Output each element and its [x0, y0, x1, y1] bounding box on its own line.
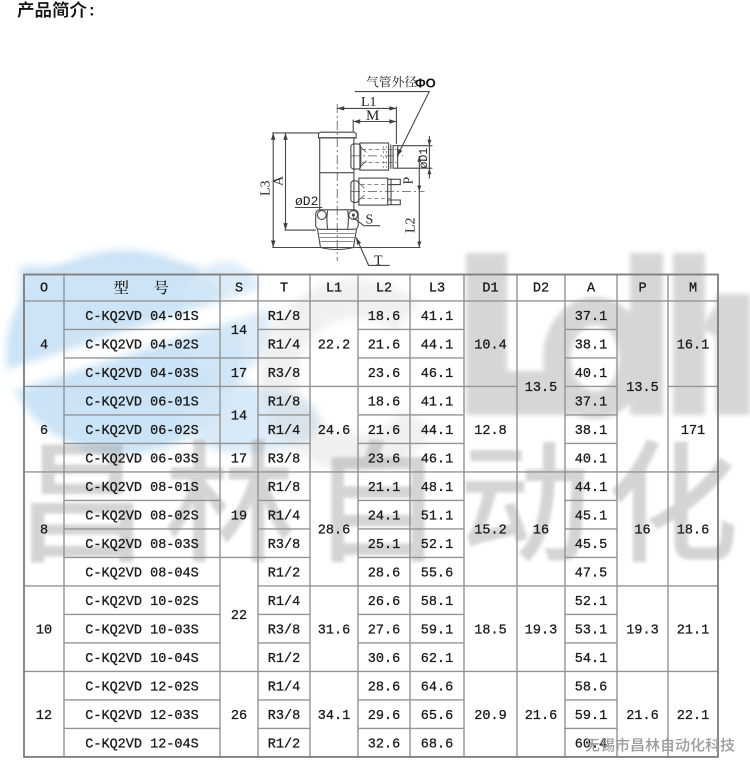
svg-text:44.1: 44.1 [575, 481, 607, 496]
svg-text:38.1: 38.1 [575, 338, 607, 353]
svg-text:32.6: 32.6 [368, 737, 400, 752]
svg-text:T: T [280, 282, 288, 297]
svg-text:øD2: øD2 [295, 194, 318, 209]
svg-text:C-KQ2VD 04-02S: C-KQ2VD 04-02S [85, 338, 198, 353]
svg-text:28.6: 28.6 [368, 566, 400, 581]
svg-text:8: 8 [40, 524, 48, 539]
svg-text:40.1: 40.1 [575, 367, 607, 382]
svg-text:29.6: 29.6 [368, 709, 400, 724]
svg-text:T: T [374, 254, 383, 269]
svg-text:40.1: 40.1 [575, 452, 607, 467]
svg-text:12: 12 [36, 709, 52, 724]
svg-text:21.1: 21.1 [368, 481, 400, 496]
svg-text:18.6: 18.6 [677, 524, 709, 539]
svg-text:C-KQ2VD 10-02S: C-KQ2VD 10-02S [85, 595, 198, 610]
svg-text:10.4: 10.4 [474, 338, 506, 353]
svg-text:38.1: 38.1 [575, 424, 607, 439]
svg-text:48.1: 48.1 [421, 481, 453, 496]
svg-text:64.6: 64.6 [421, 680, 453, 695]
svg-text:12.8: 12.8 [474, 424, 506, 439]
svg-text:22.1: 22.1 [677, 709, 709, 724]
svg-text:ΦO: ΦO [415, 76, 436, 91]
svg-text:14: 14 [231, 410, 247, 425]
svg-text:65.6: 65.6 [421, 709, 453, 724]
svg-text:17: 17 [231, 452, 247, 467]
svg-text:P: P [402, 177, 417, 185]
svg-text:C-KQ2VD 08-02S: C-KQ2VD 08-02S [85, 509, 198, 524]
svg-text:22: 22 [231, 609, 247, 624]
svg-text:51.1: 51.1 [421, 509, 453, 524]
svg-text:C-KQ2VD 12-02S: C-KQ2VD 12-02S [85, 680, 198, 695]
svg-text:46.1: 46.1 [421, 452, 453, 467]
svg-text:R1/4: R1/4 [268, 680, 300, 695]
svg-text:R1/4: R1/4 [268, 509, 300, 524]
svg-text:R1/2: R1/2 [268, 737, 300, 752]
svg-text:L1: L1 [326, 282, 342, 297]
svg-text:C-KQ2VD 06-02S: C-KQ2VD 06-02S [85, 424, 198, 439]
svg-text:68.6: 68.6 [421, 737, 453, 752]
svg-text:58.1: 58.1 [421, 595, 453, 610]
svg-text:54.1: 54.1 [575, 652, 607, 667]
svg-text:6: 6 [40, 424, 48, 439]
svg-text:D2: D2 [533, 282, 549, 297]
svg-text:R3/8: R3/8 [268, 623, 300, 638]
svg-text:C-KQ2VD 12-04S: C-KQ2VD 12-04S [85, 737, 198, 752]
svg-text:L3: L3 [429, 282, 445, 297]
svg-text:O: O [40, 282, 48, 297]
svg-text:47.5: 47.5 [575, 566, 607, 581]
svg-text:D1: D1 [482, 282, 498, 297]
svg-text:10: 10 [36, 623, 52, 638]
svg-text:R1/2: R1/2 [268, 652, 300, 667]
svg-text:34.1: 34.1 [318, 709, 350, 724]
svg-text:37.1: 37.1 [575, 395, 607, 410]
svg-text:R3/8: R3/8 [268, 452, 300, 467]
svg-text:41.1: 41.1 [421, 310, 453, 325]
svg-text:R3/8: R3/8 [268, 367, 300, 382]
svg-text:24.6: 24.6 [318, 424, 350, 439]
svg-text:C-KQ2VD 06-01S: C-KQ2VD 06-01S [85, 395, 198, 410]
svg-text:41.1: 41.1 [421, 395, 453, 410]
svg-text:L2: L2 [376, 282, 392, 297]
svg-text:17: 17 [231, 367, 247, 382]
svg-text:18.6: 18.6 [368, 310, 400, 325]
svg-text:28.6: 28.6 [368, 680, 400, 695]
svg-text:16.1: 16.1 [677, 338, 709, 353]
svg-text:19: 19 [231, 509, 247, 524]
svg-text:M: M [689, 282, 697, 297]
svg-text:21.6: 21.6 [368, 338, 400, 353]
svg-text:C-KQ2VD 08-01S: C-KQ2VD 08-01S [85, 481, 198, 496]
svg-text:19.3: 19.3 [626, 623, 658, 638]
svg-text:R1/8: R1/8 [268, 395, 300, 410]
svg-text:C-KQ2VD 08-03S: C-KQ2VD 08-03S [85, 538, 198, 553]
svg-text:31.6: 31.6 [318, 623, 350, 638]
svg-text:55.6: 55.6 [421, 566, 453, 581]
svg-text:59.1: 59.1 [575, 709, 607, 724]
svg-text:18.5: 18.5 [474, 623, 506, 638]
svg-text:C-KQ2VD 10-03S: C-KQ2VD 10-03S [85, 623, 198, 638]
svg-text:24.1: 24.1 [368, 509, 400, 524]
svg-text:S: S [235, 282, 243, 297]
svg-text:45.1: 45.1 [575, 509, 607, 524]
svg-text:R1/4: R1/4 [268, 595, 300, 610]
svg-text:15.2: 15.2 [474, 524, 506, 539]
svg-text:21.6: 21.6 [626, 709, 658, 724]
svg-text:21.6: 21.6 [525, 709, 557, 724]
svg-text:20.9: 20.9 [474, 709, 506, 724]
svg-text:16: 16 [634, 524, 650, 539]
svg-text:59.1: 59.1 [421, 623, 453, 638]
svg-text:P: P [638, 282, 646, 297]
svg-text:C-KQ2VD 04-03S: C-KQ2VD 04-03S [85, 367, 198, 382]
svg-text:C-KQ2VD 04-01S: C-KQ2VD 04-01S [85, 310, 198, 325]
svg-text:37.1: 37.1 [575, 310, 607, 325]
svg-text:16: 16 [533, 524, 549, 539]
svg-text:44.1: 44.1 [421, 424, 453, 439]
svg-text:62.1: 62.1 [421, 652, 453, 667]
svg-text:R1/4: R1/4 [268, 424, 300, 439]
svg-text:44.1: 44.1 [421, 338, 453, 353]
svg-text:26.6: 26.6 [368, 595, 400, 610]
svg-text:C-KQ2VD 06-03S: C-KQ2VD 06-03S [85, 452, 198, 467]
svg-text:4: 4 [40, 338, 48, 353]
svg-text:58.6: 58.6 [575, 680, 607, 695]
svg-text:21.6: 21.6 [368, 424, 400, 439]
svg-text:46.1: 46.1 [421, 367, 453, 382]
svg-text:19.3: 19.3 [525, 623, 557, 638]
svg-text:13.5: 13.5 [525, 381, 557, 396]
svg-text:21.1: 21.1 [677, 623, 709, 638]
svg-text:53.1: 53.1 [575, 623, 607, 638]
svg-text:22.2: 22.2 [318, 338, 350, 353]
svg-text::: : [87, 3, 97, 21]
svg-text:45.5: 45.5 [575, 538, 607, 553]
svg-text:R3/8: R3/8 [268, 538, 300, 553]
svg-text:52.1: 52.1 [421, 538, 453, 553]
svg-text:A: A [272, 175, 287, 186]
svg-text:A: A [587, 282, 596, 297]
svg-text:23.6: 23.6 [368, 452, 400, 467]
svg-text:L2: L2 [404, 217, 419, 233]
svg-text:23.6: 23.6 [368, 367, 400, 382]
svg-text:M: M [366, 108, 379, 124]
svg-text:171: 171 [681, 424, 705, 439]
svg-text:52.1: 52.1 [575, 595, 607, 610]
svg-text:C-KQ2VD 10-04S: C-KQ2VD 10-04S [85, 652, 198, 667]
svg-text:R1/8: R1/8 [268, 310, 300, 325]
svg-text:18.6: 18.6 [368, 395, 400, 410]
svg-text:R1/4: R1/4 [268, 338, 300, 353]
svg-text:R1/2: R1/2 [268, 566, 300, 581]
svg-text:13.5: 13.5 [626, 381, 658, 396]
svg-text:26: 26 [231, 709, 247, 724]
svg-text:30.6: 30.6 [368, 652, 400, 667]
svg-text:25.1: 25.1 [368, 538, 400, 553]
svg-text:R3/8: R3/8 [268, 709, 300, 724]
svg-text:28.6: 28.6 [318, 524, 350, 539]
svg-text:14: 14 [231, 324, 247, 339]
svg-text:C-KQ2VD 12-03S: C-KQ2VD 12-03S [85, 709, 198, 724]
svg-text:R1/8: R1/8 [268, 481, 300, 496]
svg-text:27.6: 27.6 [368, 623, 400, 638]
svg-text:C-KQ2VD 08-04S: C-KQ2VD 08-04S [85, 566, 198, 581]
